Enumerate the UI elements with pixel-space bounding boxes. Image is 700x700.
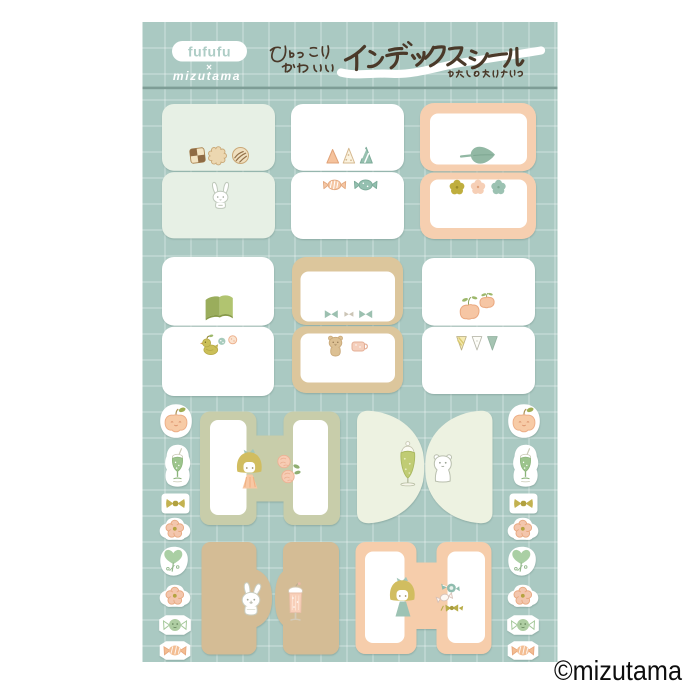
svg-text:mizutama: mizutama [173,69,241,83]
svg-text:©mizutama: ©mizutama [554,655,682,686]
svg-text:fufufu: fufufu [188,43,231,59]
